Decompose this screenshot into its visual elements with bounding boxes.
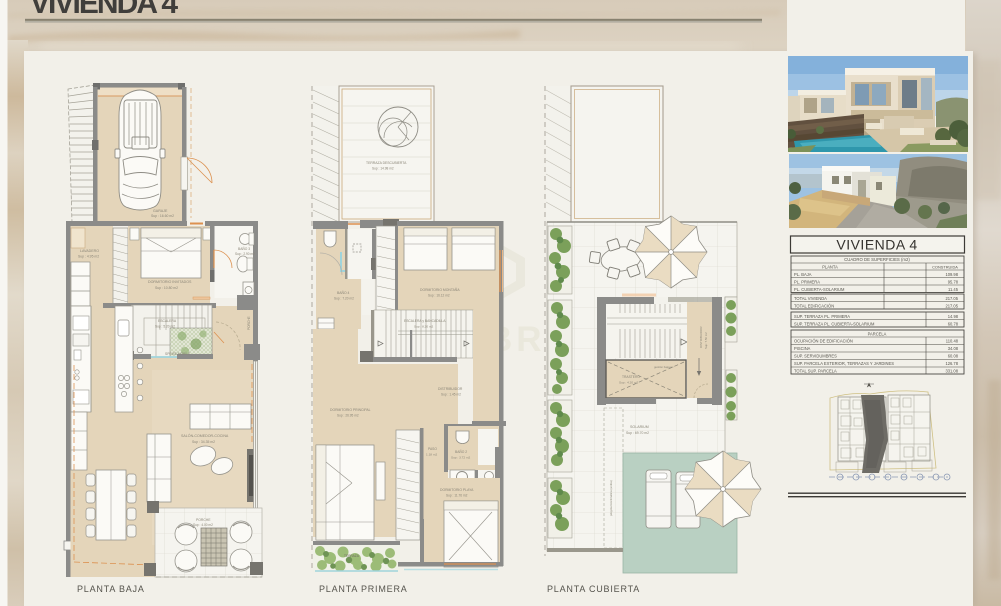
svg-text:PARCELA: PARCELA [868, 331, 887, 336]
svg-text:11.45: 11.45 [948, 287, 959, 292]
svg-text:Sup : 2.90 m2: Sup : 2.90 m2 [235, 252, 255, 256]
svg-text:OCUPACIÓN DE EDIFICACIÓN: OCUPACIÓN DE EDIFICACIÓN [794, 338, 853, 343]
svg-text:Sup : 16.12 m2: Sup : 16.12 m2 [428, 294, 450, 298]
svg-text:pérgola bioclimática (arriba): pérgola bioclimática (arriba) [609, 480, 613, 516]
svg-text:PASO: PASO [428, 447, 437, 451]
svg-text:Sup : 26.95 m2: Sup : 26.95 m2 [337, 414, 359, 418]
svg-text:BAÑO 4: BAÑO 4 [337, 290, 350, 295]
svg-text:Sup : 3.72 m2: Sup : 3.72 m2 [451, 456, 471, 460]
svg-text:126.78: 126.78 [945, 361, 958, 366]
svg-text:CONSTRUIDA: CONSTRUIDA [932, 264, 958, 269]
svg-text:ESCALERA y BANCADILLA: ESCALERA y BANCADILLA [404, 319, 446, 323]
svg-text:Sup : 11.76 m2: Sup : 11.76 m2 [446, 494, 468, 498]
svg-text:331.08: 331.08 [945, 368, 958, 373]
svg-text:ESCALERA: ESCALERA [158, 319, 177, 323]
svg-text:Sup: 7.50 m2: Sup: 7.50 m2 [704, 332, 708, 349]
svg-text:217.05: 217.05 [945, 296, 958, 301]
svg-text:Sup : 10.80 m2: Sup : 10.80 m2 [155, 286, 178, 290]
svg-text:217.05: 217.05 [945, 303, 958, 308]
svg-text:gestión bajoesc: gestión bajoesc [654, 365, 674, 369]
svg-text:DORMITORIO MONTAÑA: DORMITORIO MONTAÑA [420, 287, 460, 292]
svg-text:60.08: 60.08 [948, 353, 959, 358]
svg-text:VIVIENDA 4: VIVIENDA 4 [30, 0, 178, 20]
svg-text:DISTRIBUIDOR: DISTRIBUIDOR [699, 326, 703, 348]
svg-text:SUP. TERRAZA PL. PRIMERA: SUP. TERRAZA PL. PRIMERA [794, 314, 850, 319]
svg-text:Sup : 4.20 m2: Sup : 4.20 m2 [619, 381, 639, 385]
svg-text:PORCHE: PORCHE [247, 316, 251, 330]
svg-text:Sup : 4.95 m2: Sup : 4.95 m2 [78, 255, 99, 259]
svg-text:14.98: 14.98 [948, 314, 959, 319]
svg-text:Sup : 34.35 m2: Sup : 34.35 m2 [192, 440, 215, 444]
svg-text:Sup : 8.20 m2: Sup : 8.20 m2 [414, 325, 434, 329]
svg-text:1.18 m2: 1.18 m2 [426, 453, 437, 457]
svg-text:PLANTA BAJA: PLANTA BAJA [77, 584, 145, 594]
svg-text:TERRAZA: TERRAZA [344, 554, 360, 558]
svg-text:Sup : 4.00 m2: Sup : 4.00 m2 [193, 523, 213, 527]
svg-text:PLANTA: PLANTA [822, 264, 838, 269]
svg-text:SUP. PARCELA EXTERIOR, TERRAZA: SUP. PARCELA EXTERIOR, TERRAZAS Y JARDIN… [794, 361, 894, 366]
svg-text:SUP. TERRAZA PL. CUBIERTA-SOLA: SUP. TERRAZA PL. CUBIERTA-SOLARIUM [794, 321, 875, 326]
svg-text:BAÑO 2: BAÑO 2 [455, 449, 467, 454]
svg-text:PL. BAJA: PL. BAJA [794, 272, 812, 277]
svg-text:34.08: 34.08 [948, 346, 959, 351]
svg-text:TERRAZA DESCUBIERTA: TERRAZA DESCUBIERTA [366, 161, 407, 165]
svg-text:TOTAL SUP. PARCELA: TOTAL SUP. PARCELA [794, 368, 837, 373]
svg-text:Sup : 14.98 m2: Sup : 14.98 m2 [372, 167, 394, 171]
svg-text:110.48: 110.48 [946, 338, 959, 343]
svg-text:60.78: 60.78 [948, 321, 959, 326]
svg-text:Sup : 16.60 m2: Sup : 16.60 m2 [151, 214, 174, 218]
svg-text:GARAJE: GARAJE [153, 209, 168, 213]
svg-text:SOLARIUM: SOLARIUM [630, 425, 649, 429]
svg-text:Sup : 69.70 m2: Sup : 69.70 m2 [626, 431, 649, 435]
svg-text:TOTAL EDIFICACIÓN: TOTAL EDIFICACIÓN [794, 303, 834, 308]
svg-text:LAVADERO: LAVADERO [80, 249, 99, 253]
svg-text:PL. PRIMERA: PL. PRIMERA [794, 279, 820, 284]
svg-text:CUADRO DE SUPERFICIES (m2): CUADRO DE SUPERFICIES (m2) [844, 257, 910, 262]
svg-text:SUP. SERVIDUMBRES: SUP. SERVIDUMBRES [794, 353, 837, 358]
svg-text:BAÑO 3: BAÑO 3 [238, 246, 250, 251]
svg-text:PLANTA PRIMERA: PLANTA PRIMERA [319, 584, 408, 594]
svg-text:PORCHE: PORCHE [196, 518, 211, 522]
svg-text:95.78: 95.78 [948, 279, 959, 284]
svg-text:VIVIENDA 4: VIVIENDA 4 [836, 237, 917, 253]
svg-text:SALÓN-COMEDOR-COCINA: SALÓN-COMEDOR-COCINA [181, 433, 229, 438]
svg-text:DORMITORIO PLAYA: DORMITORIO PLAYA [440, 488, 474, 492]
svg-text:PISCINA: PISCINA [794, 346, 811, 351]
svg-text:PLANTA CUBIERTA: PLANTA CUBIERTA [547, 584, 640, 594]
svg-text:Sup : 7.20 m2: Sup : 7.20 m2 [334, 297, 354, 301]
svg-text:DORMITORIO PRINCIPAL: DORMITORIO PRINCIPAL [330, 408, 371, 412]
svg-text:109.98: 109.98 [945, 272, 958, 277]
svg-text:PL. CUBIERTA-SOLARIUM: PL. CUBIERTA-SOLARIUM [794, 287, 845, 292]
svg-text:DORMITORIO INVITADOS: DORMITORIO INVITADOS [148, 280, 192, 284]
svg-text:DISTRIBUIDOR: DISTRIBUIDOR [438, 387, 463, 391]
svg-text:TRASTERO: TRASTERO [622, 375, 640, 379]
svg-text:Sup : 1.45 m2: Sup : 1.45 m2 [441, 393, 461, 397]
svg-text:TOTAL VIVIENDA: TOTAL VIVIENDA [794, 296, 827, 301]
svg-text:SPEISE MOBILE: SPEISE MOBILE [165, 352, 191, 356]
